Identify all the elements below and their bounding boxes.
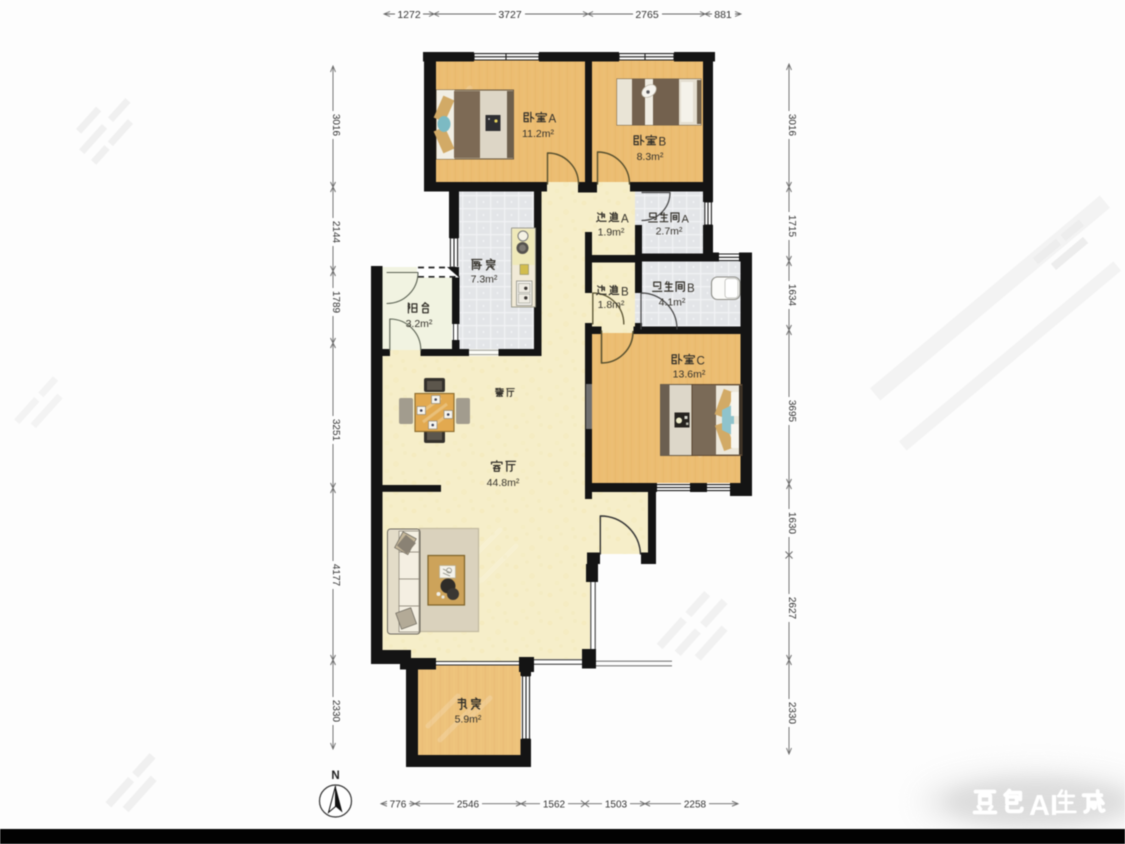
svg-text:1562: 1562 (543, 800, 566, 811)
svg-text:A: A (621, 214, 629, 226)
svg-text:5.9m²: 5.9m² (455, 714, 482, 726)
svg-text:3251: 3251 (330, 419, 341, 442)
svg-text:8.3m²: 8.3m² (637, 151, 664, 163)
svg-text:2330: 2330 (330, 700, 341, 723)
svg-text:N: N (331, 770, 339, 782)
svg-text:4177: 4177 (330, 564, 341, 587)
svg-text:2330: 2330 (786, 702, 797, 725)
svg-text:1630: 1630 (786, 512, 797, 535)
svg-text:3.2m²: 3.2m² (406, 318, 433, 330)
svg-text:11.2m²: 11.2m² (522, 128, 554, 140)
svg-text:776: 776 (390, 800, 407, 811)
svg-text:AI: AI (1029, 790, 1058, 822)
svg-text:1789: 1789 (330, 291, 341, 314)
svg-text:3016: 3016 (786, 114, 797, 137)
svg-text:2765: 2765 (635, 9, 659, 21)
svg-text:C: C (697, 356, 705, 368)
svg-text:3727: 3727 (498, 9, 522, 21)
svg-text:2.7m²: 2.7m² (656, 226, 683, 238)
svg-text:1272: 1272 (397, 9, 421, 21)
svg-text:A: A (682, 214, 690, 226)
svg-text:1715: 1715 (786, 215, 797, 238)
svg-text:A: A (549, 114, 557, 126)
svg-text:4.1m²: 4.1m² (659, 297, 686, 309)
svg-text:44.8m²: 44.8m² (487, 477, 520, 489)
svg-text:B: B (621, 287, 629, 299)
svg-text:3695: 3695 (786, 400, 797, 423)
svg-text:B: B (687, 283, 695, 295)
svg-text:B: B (659, 137, 667, 149)
svg-text:881: 881 (714, 9, 732, 21)
svg-text:2144: 2144 (330, 221, 341, 244)
svg-text:2546: 2546 (457, 800, 480, 811)
svg-text:1.9m²: 1.9m² (598, 227, 625, 239)
svg-text:1503: 1503 (605, 800, 628, 811)
svg-text:1.8m²: 1.8m² (598, 299, 625, 311)
svg-text:3016: 3016 (330, 114, 341, 137)
svg-text:7.3m²: 7.3m² (471, 274, 498, 286)
svg-text:2627: 2627 (786, 597, 797, 620)
svg-text:1634: 1634 (786, 284, 797, 307)
svg-text:13.6m²: 13.6m² (673, 369, 706, 381)
svg-text:2258: 2258 (684, 800, 707, 811)
